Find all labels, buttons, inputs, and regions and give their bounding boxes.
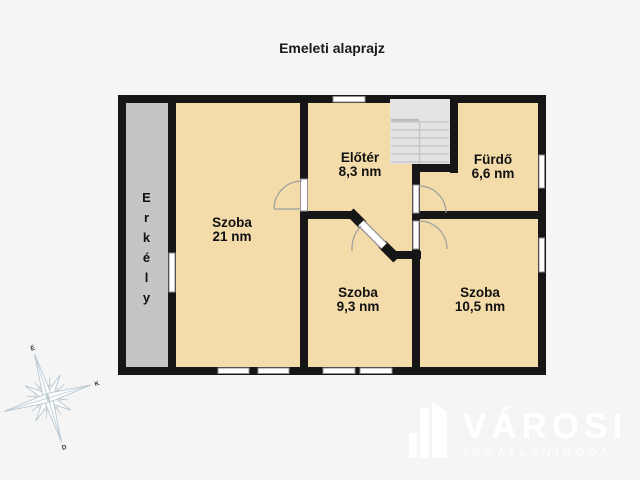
building-icon-tower [432,401,447,458]
floor-plan: Szoba 21 nm Előtér 8,3 nm Fürdő 6,6 nm S… [118,95,546,375]
window-furdo-right [539,155,545,188]
compass-rose: É K D [0,328,116,465]
room-label-erkely: Erkély [139,190,154,310]
building-icon [409,401,447,458]
room-label-szoba93-name: Szoba [338,285,378,300]
wall-furdo-bottom [412,211,546,219]
brand-tagline: INGATLANIRODA [464,447,613,459]
window-eloter-top [333,97,365,103]
room-label-furdo-name: Fürdő [474,152,512,167]
wall-balcony-divider [168,95,176,375]
room-label-szoba21-area: 21 nm [212,229,251,244]
balcony-door [169,253,175,292]
staircase [390,99,450,164]
floor-plan-drawing: Szoba 21 nm Előtér 8,3 nm Fürdő 6,6 nm S… [0,0,640,480]
compass-east-label: K [94,380,101,388]
window-szoba93-bottom-2 [360,368,392,374]
compass-south-label: D [61,444,68,452]
room-label-szoba21-name: Szoba [212,215,252,230]
building-icon-bar-tall [420,408,429,458]
brand-logo: VÁROSI INGATLANIRODA [409,401,627,459]
window-szoba93-bottom-1 [323,368,355,374]
window-szoba21-bottom-1 [218,368,249,374]
room-label-szoba105-area: 10,5 nm [455,299,505,314]
room-label-furdo-area: 6,6 nm [472,166,515,181]
window-szoba21-bottom-2 [258,368,289,374]
window-szoba105-right [539,238,545,272]
room-label-szoba93-area: 9,3 nm [337,299,380,314]
building-icon-bar-small [409,433,417,458]
floor-plan-page: Emeleti alaprajz [0,0,640,480]
door-szoba21 [301,179,308,211]
room-label-eloter-area: 8,3 nm [339,164,382,179]
door-furdo [413,185,419,213]
wall-szoba21-divider [300,95,308,375]
floor-area [126,103,538,367]
wall-stairs-right [450,95,458,173]
room-label-szoba105-name: Szoba [460,285,500,300]
brand-name: VÁROSI [463,406,627,446]
room-label-eloter-name: Előtér [341,150,380,165]
door-szoba105 [413,221,419,249]
compass-north-label: É [29,343,36,353]
